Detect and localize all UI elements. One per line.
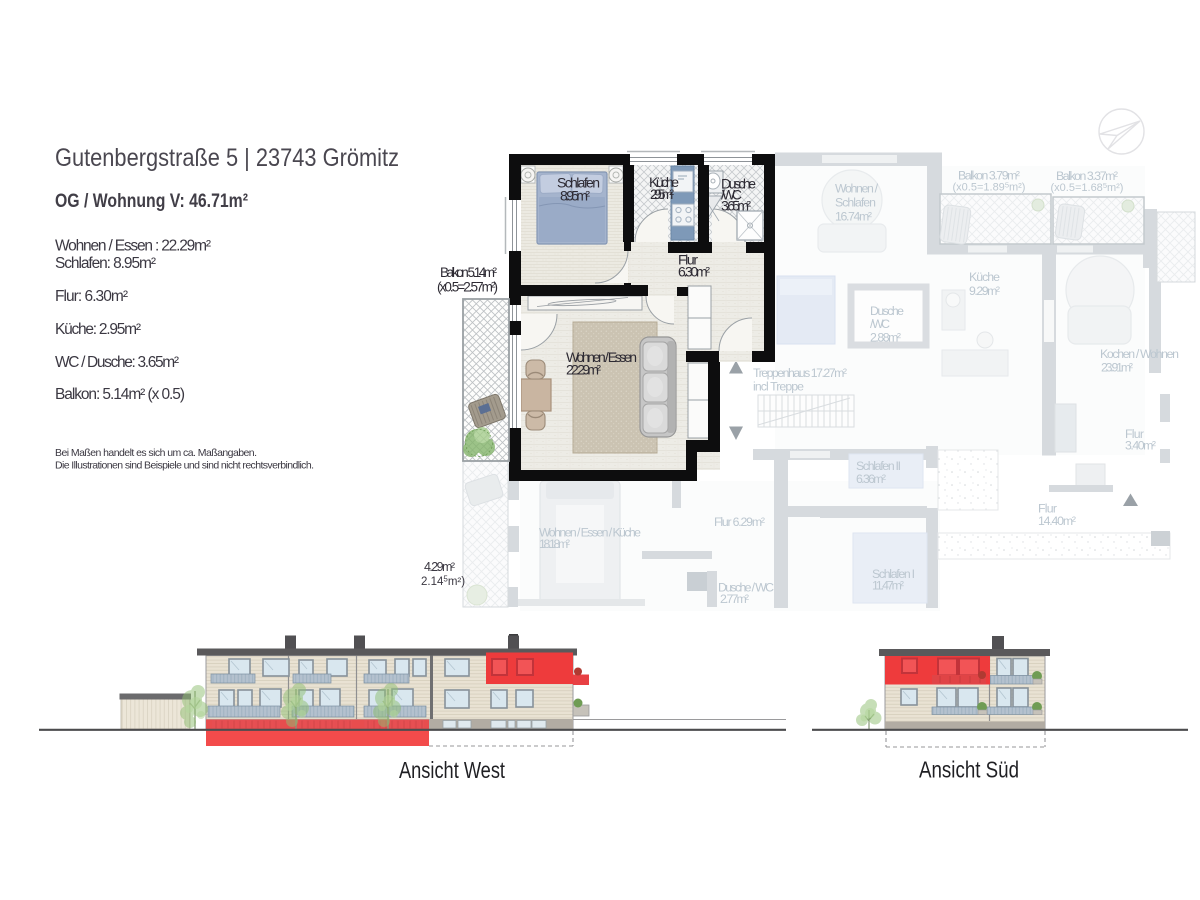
svg-text:22.29m²: 22.29m² (566, 362, 601, 378)
svg-text:23.91m²: 23.91m² (1101, 361, 1133, 375)
svg-text:2.95m²: 2.95m² (650, 186, 674, 202)
svg-text:16.74m²: 16.74m² (835, 210, 872, 224)
svg-text:Schlafen II: Schlafen II (856, 459, 901, 473)
svg-text:Küche: Küche (969, 270, 1000, 284)
svg-text:Gutenbergstraße 5 | 23743 Gröm: Gutenbergstraße 5 | 23743 Grömitz (55, 144, 399, 172)
svg-text:Balkon 3.37m²: Balkon 3.37m² (1056, 169, 1118, 183)
svg-text:WC / Dusche: 3.65m²: WC / Dusche: 3.65m² (55, 354, 179, 371)
svg-text:Balkon 3.79m²: Balkon 3.79m² (958, 169, 1020, 183)
svg-text:OG / Wohnung V: 46.71m²: OG / Wohnung V: 46.71m² (55, 191, 248, 212)
svg-text:Kochen / Wohnen: Kochen / Wohnen (1100, 347, 1179, 361)
svg-text:Balkon 5.14m²: Balkon 5.14m² (440, 265, 498, 280)
svg-text:(x0.5=2.57m²): (x0.5=2.57m²) (437, 280, 498, 295)
svg-text:9.29m²: 9.29m² (969, 284, 1000, 298)
svg-text:4.29m²: 4.29m² (424, 560, 455, 574)
svg-text:Die Illustrationen sind Beispi: Die Illustrationen sind Beispiele und si… (55, 460, 314, 472)
svg-text:Ansicht West: Ansicht West (399, 757, 505, 783)
svg-text:6.30m²: 6.30m² (678, 264, 710, 280)
svg-text:Küche: 2.95m²: Küche: 2.95m² (55, 321, 141, 338)
svg-text:2.77m²: 2.77m² (720, 592, 749, 606)
svg-text:Ansicht Süd: Ansicht Süd (919, 757, 1019, 783)
svg-text:3.65m²: 3.65m² (721, 198, 751, 214)
svg-text:/ WC: / WC (870, 317, 890, 331)
svg-text:Balkon: 5.14m² (x 0.5): Balkon: 5.14m² (x 0.5) (55, 386, 185, 403)
svg-text:Treppenhaus 17.27m²: Treppenhaus 17.27m² (753, 366, 847, 380)
svg-text:2.88m²: 2.88m² (870, 331, 901, 345)
svg-text:18.18m²: 18.18m² (539, 537, 570, 551)
svg-text:Wohnen /: Wohnen / (835, 182, 879, 196)
svg-text:8.95m²: 8.95m² (560, 188, 590, 204)
svg-text:incl Treppe: incl Treppe (753, 380, 804, 394)
svg-text:2.145m²): 2.145m²) (421, 575, 465, 589)
svg-text:(x0.5=1.895m²): (x0.5=1.895m²) (953, 180, 1026, 193)
svg-text:14.40m²: 14.40m² (1038, 514, 1076, 528)
svg-text:Schlafen: 8.95m²: Schlafen: 8.95m² (55, 255, 156, 272)
svg-text:Schlafen: Schlafen (835, 196, 876, 210)
svg-text:6.36m²: 6.36m² (856, 472, 886, 486)
svg-text:Dusche: Dusche (870, 304, 904, 318)
svg-text:3.40m²: 3.40m² (1125, 439, 1156, 453)
svg-text:Flur: 6.30m²: Flur: 6.30m² (55, 288, 128, 305)
svg-text:(x0.5=1.685m²): (x0.5=1.685m²) (1051, 181, 1124, 194)
svg-text:11.47m²: 11.47m² (872, 579, 904, 593)
svg-text:Wohnen / Essen : 22.29m²: Wohnen / Essen : 22.29m² (55, 238, 211, 255)
svg-text:Flur 6.29m²: Flur 6.29m² (714, 515, 765, 529)
svg-text:Bei Maßen handelt es sich um c: Bei Maßen handelt es sich um ca. Maßanga… (55, 447, 257, 459)
